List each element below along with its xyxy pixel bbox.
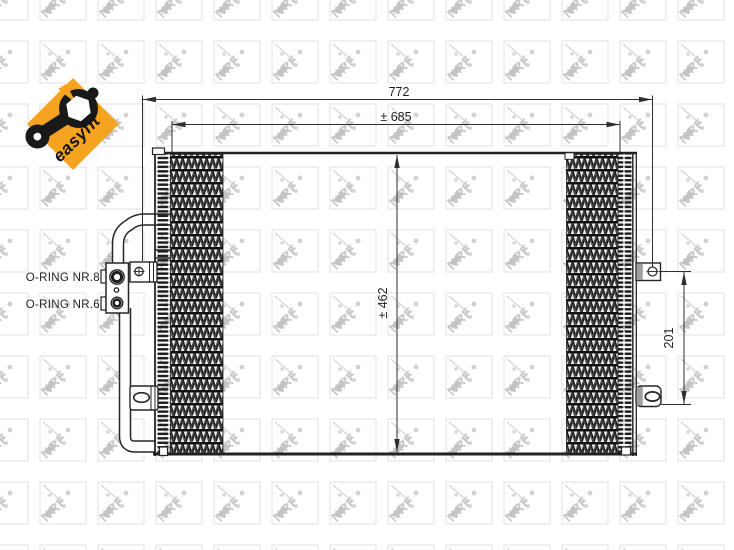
bottom-right-bracket — [636, 386, 661, 407]
product-diagram-svg: NRF — [0, 0, 734, 550]
top-right-bracket — [636, 263, 661, 281]
mounting-foot-right — [622, 447, 631, 455]
dim-overall-width-text: 772 — [389, 85, 410, 99]
oring6-label: O-RING NR.6 — [26, 299, 100, 311]
top-left-tab — [153, 148, 165, 155]
dim-bracket-pitch-text: 201 — [662, 328, 676, 349]
dim-core-width-text: ± 685 — [380, 110, 411, 124]
bracket-slot-hole — [134, 393, 150, 403]
right-fin-pack — [567, 154, 619, 453]
bracket-oval-hole — [645, 392, 659, 401]
top-right-tab — [565, 153, 574, 160]
left-fin-pack — [171, 154, 224, 453]
mounting-foot-left — [160, 447, 168, 456]
left-tube-comb — [158, 154, 171, 453]
sensor-block — [130, 262, 157, 282]
oring8-label: O-RING NR.8 — [26, 272, 100, 284]
left-mounting-bracket — [130, 386, 158, 410]
catalog-product-image: NRF — [0, 0, 734, 550]
center-pin-hole — [114, 288, 118, 292]
dim-core-height-text: ± 462 — [376, 287, 390, 318]
right-tube-comb — [618, 154, 632, 453]
